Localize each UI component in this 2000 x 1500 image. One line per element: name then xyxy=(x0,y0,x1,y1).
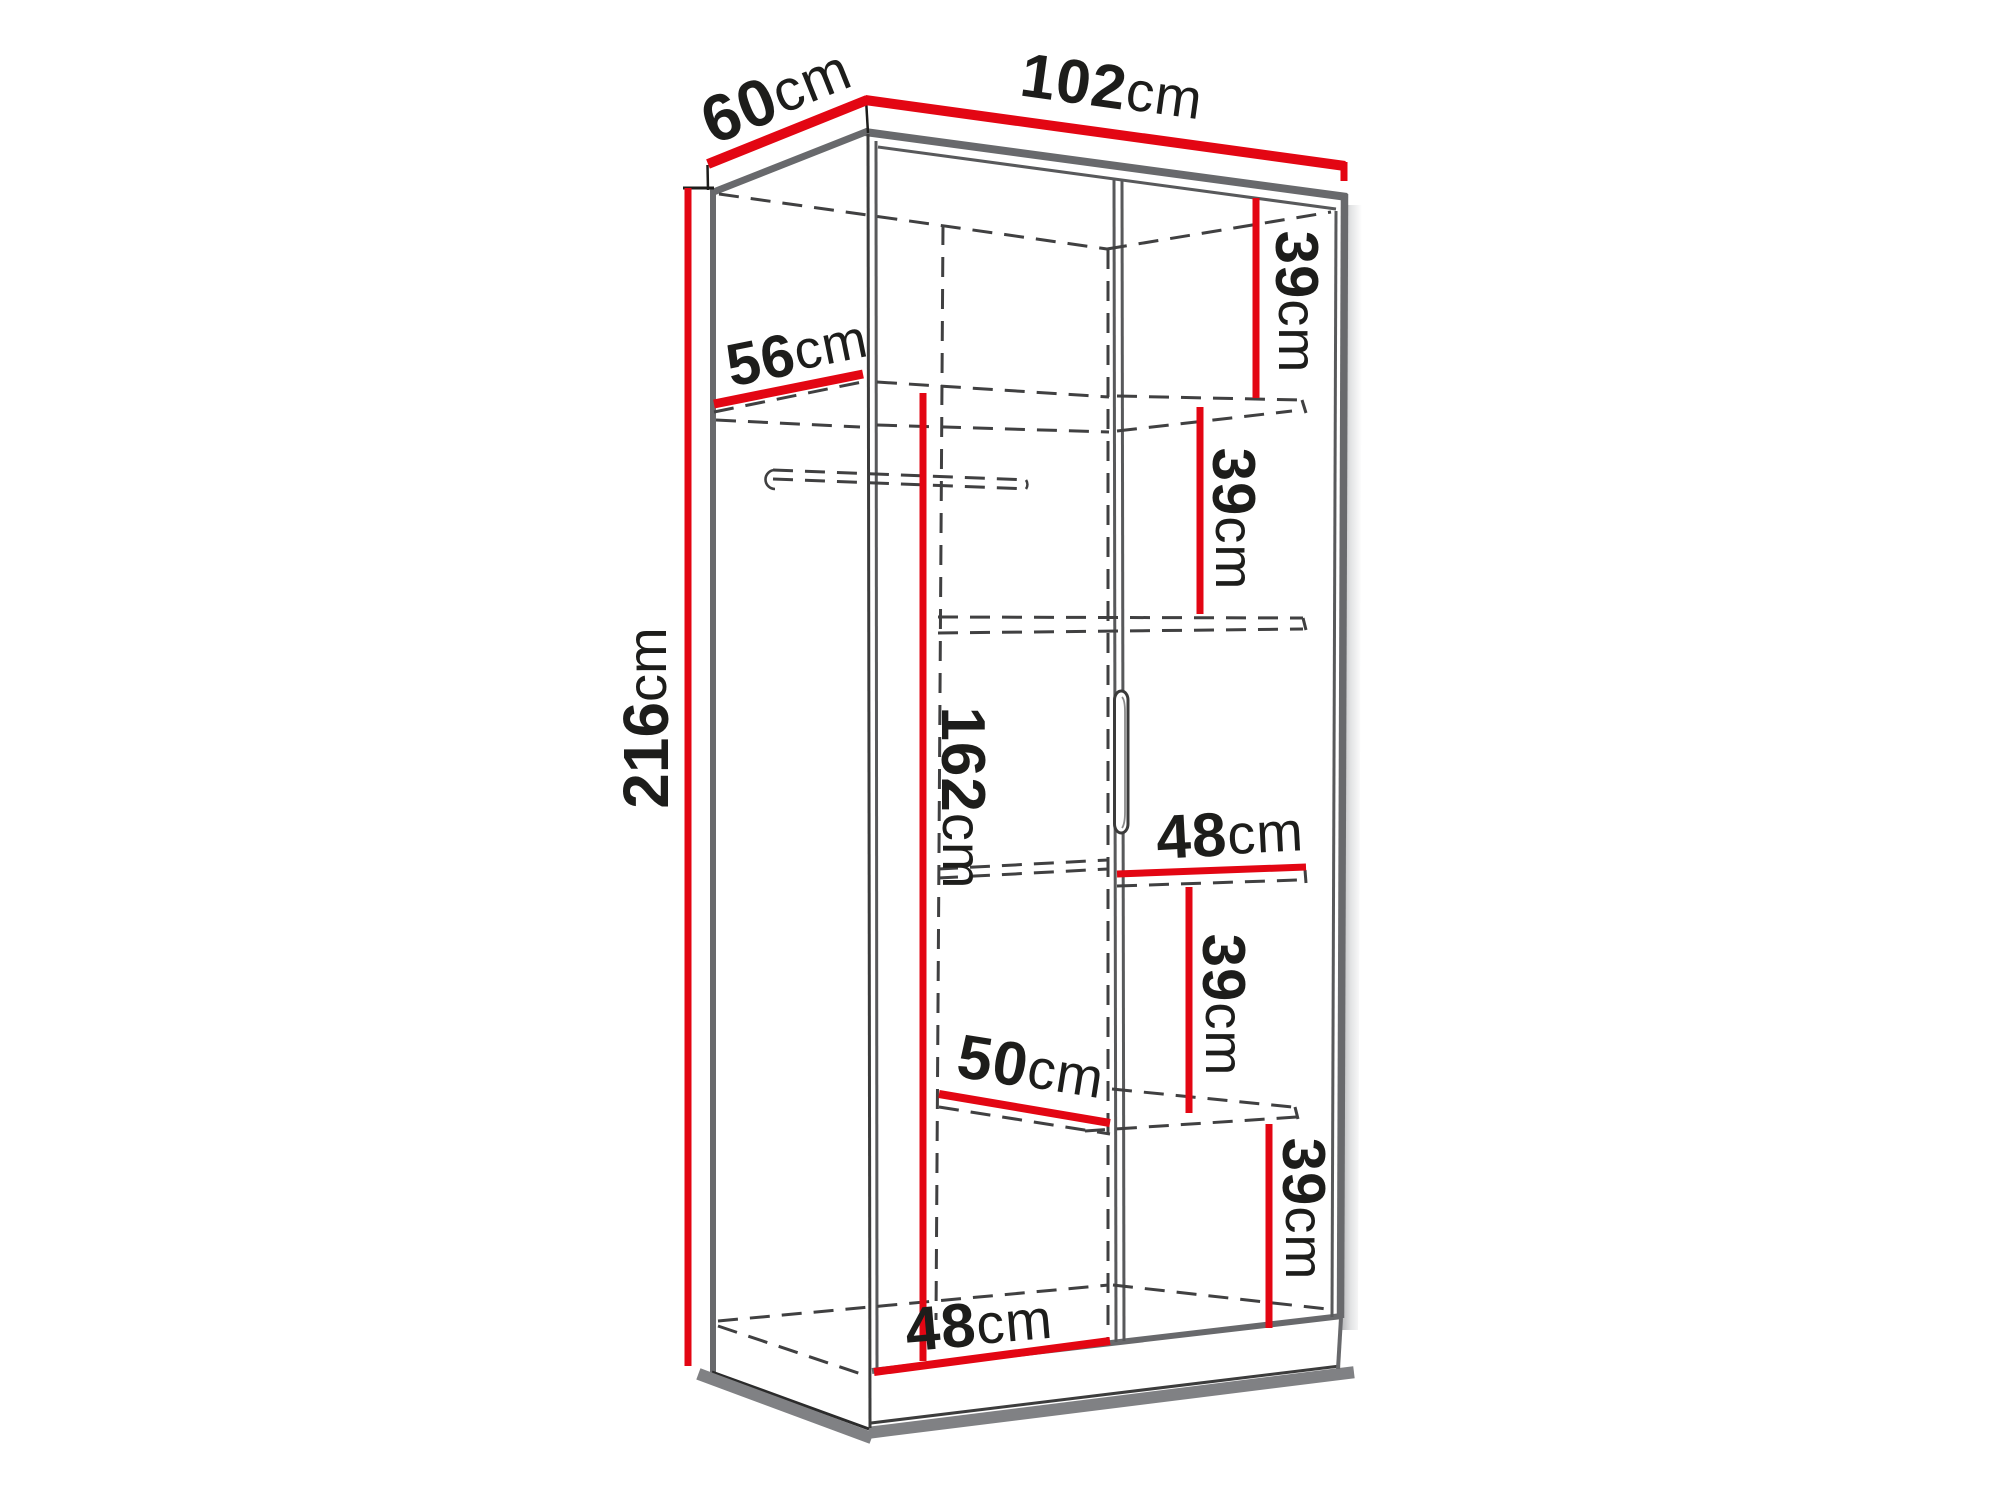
svg-text:39cm: 39cm xyxy=(1271,1138,1338,1281)
svg-text:39cm: 39cm xyxy=(1264,231,1331,374)
svg-text:162cm: 162cm xyxy=(929,706,998,889)
svg-text:39cm: 39cm xyxy=(1201,448,1268,591)
svg-text:48cm: 48cm xyxy=(1154,796,1305,873)
svg-text:216cm: 216cm xyxy=(610,627,682,808)
svg-text:39cm: 39cm xyxy=(1191,934,1258,1077)
